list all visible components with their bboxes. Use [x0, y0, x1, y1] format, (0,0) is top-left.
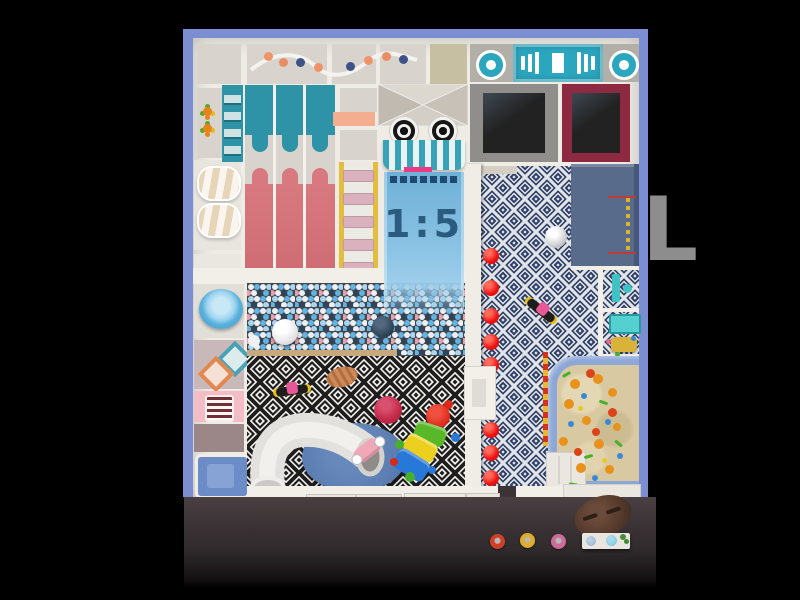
- sand-bench: [546, 452, 586, 488]
- target-circle-left: [476, 50, 506, 80]
- step: [224, 95, 241, 103]
- roller-cylinder: [197, 203, 241, 238]
- watermark: L: [642, 186, 698, 274]
- stage-bar: [528, 54, 532, 72]
- small-white-ball: [248, 335, 260, 347]
- bench-slat: [558, 456, 560, 484]
- wall: [598, 308, 639, 312]
- caterpillar-toy: [392, 400, 462, 484]
- slide-tab: [252, 168, 268, 185]
- bench-slat: [570, 456, 572, 484]
- trampoline-mat: [483, 93, 545, 153]
- trampoline-maroon: [562, 84, 630, 162]
- mini-stool: [631, 336, 636, 341]
- table-groove: [582, 513, 598, 521]
- roller-cylinder: [197, 166, 241, 201]
- stage-center-door: [549, 50, 567, 76]
- stage-bar: [591, 56, 595, 70]
- stage-bar: [577, 52, 581, 74]
- teal-fixture-knob: [623, 284, 632, 293]
- mid-room-1: [340, 88, 377, 112]
- silver-ball: [545, 226, 567, 248]
- lane-divider: [273, 85, 276, 268]
- ladder-rung: [343, 193, 374, 205]
- teal-table: [609, 314, 641, 334]
- stage-panel: [513, 44, 603, 82]
- trampoline-mat: [572, 93, 620, 153]
- lane-divider: [303, 85, 306, 268]
- slide-tab: [282, 135, 298, 152]
- slate-panel: [571, 164, 639, 270]
- stage-bar: [521, 56, 525, 70]
- climb-steps: [222, 85, 243, 162]
- wall: [598, 268, 603, 358]
- table-groove: [606, 506, 622, 514]
- wall-strip: [481, 166, 517, 174]
- scale-label: 1:5: [384, 198, 464, 250]
- entrance-gap: [498, 486, 516, 497]
- mauve-room: [194, 424, 244, 452]
- peach-shelf: [333, 112, 375, 126]
- playground-render: 1:5: [0, 0, 800, 600]
- striped-awning: [383, 140, 465, 170]
- flower-decor: [203, 124, 212, 133]
- slide-tab: [282, 168, 298, 185]
- slide-teal-section: [245, 85, 335, 135]
- pillar: [464, 366, 496, 420]
- wall: [571, 266, 639, 270]
- wavy-track: [245, 44, 425, 80]
- triple-slide: [245, 85, 335, 268]
- white-ball: [272, 319, 298, 345]
- piano-toy: [205, 395, 234, 422]
- climb-line: [608, 196, 636, 198]
- ladder-rung: [343, 170, 374, 182]
- mini-stool: [606, 339, 611, 344]
- vase: [606, 535, 617, 546]
- climb-dots: [626, 198, 630, 254]
- tan-room: [430, 44, 467, 84]
- step: [224, 146, 241, 154]
- pyramid-roof: [378, 84, 468, 126]
- ladder-rung: [343, 239, 374, 251]
- step: [224, 112, 241, 120]
- slide-dashes: [390, 176, 458, 183]
- ladder: [338, 162, 379, 282]
- divider-wall: [465, 164, 481, 488]
- top-room-1: [197, 44, 241, 84]
- plant: [624, 539, 629, 544]
- slide-pink-section: [245, 184, 335, 268]
- stage-bar: [584, 54, 588, 72]
- slide-tab: [312, 168, 328, 185]
- step: [224, 129, 241, 137]
- reception-shelf: [582, 533, 630, 549]
- spinning-bowl: [199, 289, 243, 329]
- slide-tab: [252, 135, 268, 152]
- ladder-rung: [343, 216, 374, 228]
- stage-bar: [535, 52, 539, 74]
- trampoline-gray: [470, 84, 558, 162]
- flower-decor: [203, 107, 212, 116]
- teal-fixture: [612, 274, 620, 302]
- mid-room-2: [340, 130, 377, 160]
- blue-mat-center: [207, 464, 234, 488]
- pillar-slot: [472, 379, 486, 407]
- target-circle-right: [609, 50, 639, 80]
- slide-tab: [312, 135, 328, 152]
- vase: [586, 536, 596, 546]
- climb-line: [608, 252, 636, 254]
- navy-ball: [372, 316, 394, 338]
